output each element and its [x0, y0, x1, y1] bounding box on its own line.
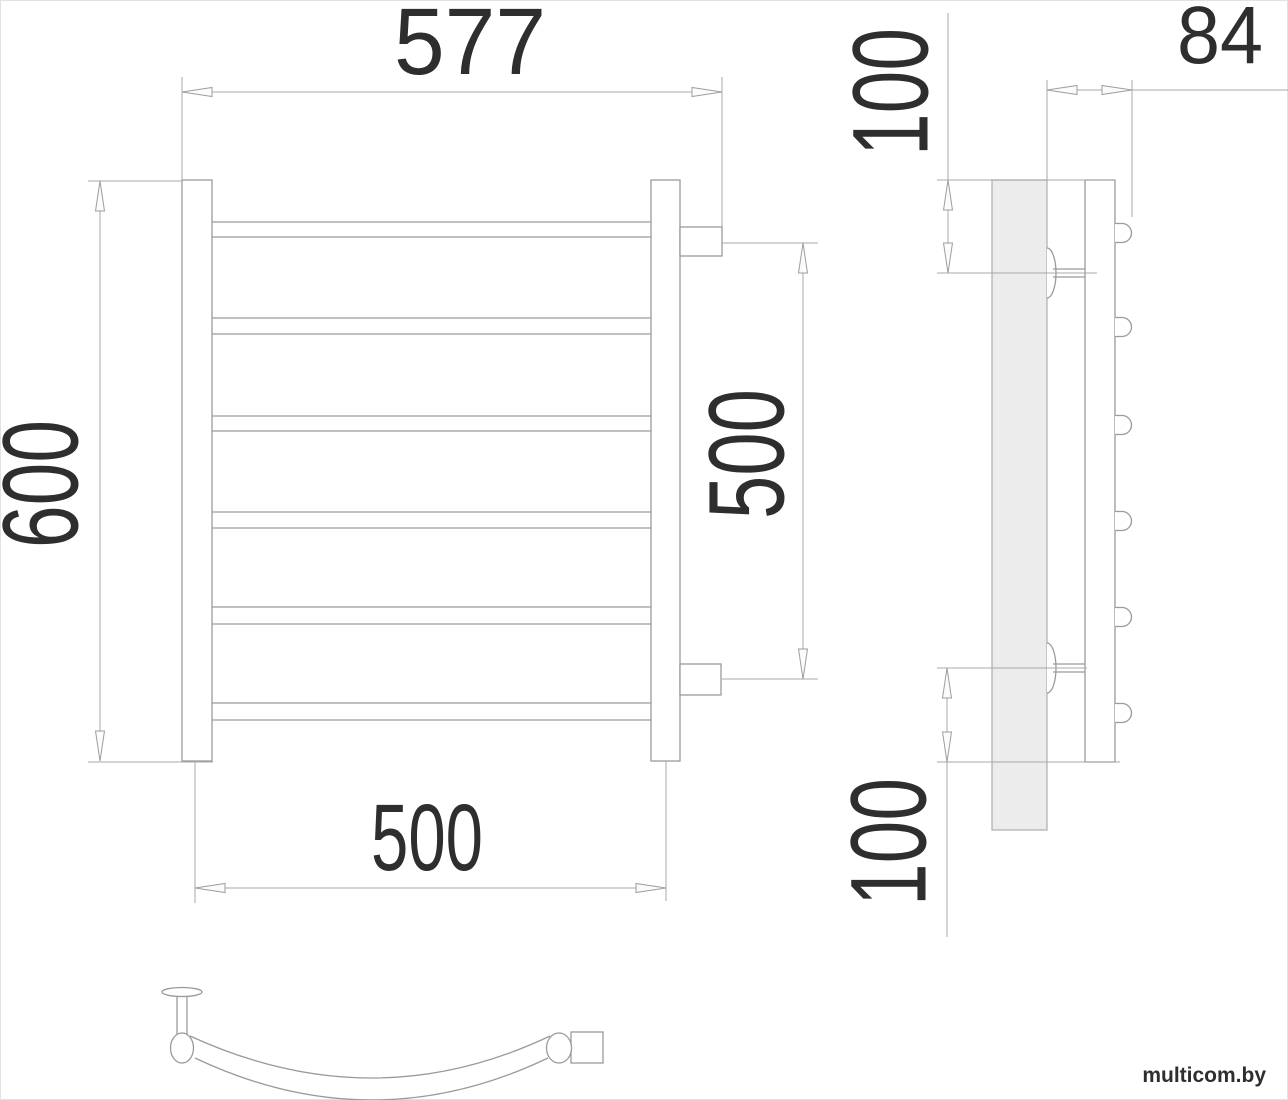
towel-rail-drawing-svg: 577 600 500 500	[0, 0, 1288, 1100]
dimension-label-100-bottom: 100	[828, 778, 949, 906]
front-bottom-connection-stub	[680, 664, 721, 695]
dimension-label-600: 600	[0, 420, 101, 548]
front-right-post	[651, 180, 680, 761]
plan-bracket-plate	[162, 988, 202, 997]
side-vertical-tube	[1085, 180, 1115, 762]
dimension-label-84: 84	[1177, 0, 1263, 81]
plan-connection-stub	[571, 1032, 603, 1063]
dimension-label-500-bottom: 500	[371, 785, 483, 891]
side-wall-plate	[992, 180, 1047, 830]
dimension-label-500-vertical: 500	[686, 389, 807, 519]
plan-right-post-section	[547, 1033, 572, 1063]
dimension-label-100-top: 100	[830, 28, 951, 156]
watermark-text: multicom.by	[1142, 1064, 1266, 1087]
plan-left-post-section	[171, 1033, 194, 1063]
dimension-label-577: 577	[394, 0, 546, 95]
front-left-post	[182, 180, 212, 761]
drawing-canvas: 577 600 500 500	[0, 0, 1288, 1100]
front-top-connection-stub	[680, 227, 722, 256]
